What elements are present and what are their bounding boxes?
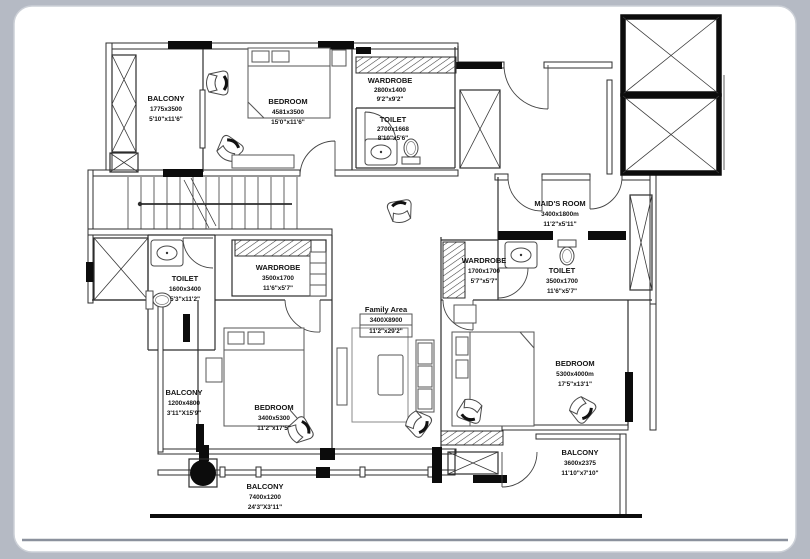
bench-top-left <box>232 155 294 168</box>
svg-text:5'10"x11'6": 5'10"x11'6" <box>149 116 183 123</box>
svg-text:Family Area: Family Area <box>365 305 408 314</box>
room-label-balcony-bottom-right: BALCONY 3600x2375 11'10"x7'10" <box>561 448 598 477</box>
room-label-toilet-top: TOILET 2700x1668 8'10"x5'6" <box>377 115 409 142</box>
svg-text:1775x3500: 1775x3500 <box>150 106 182 113</box>
svg-text:5300x4000m: 5300x4000m <box>556 371 594 378</box>
room-label-toilet-right: TOILET 3500x1700 11'6"x5'7" <box>546 266 578 295</box>
svg-text:BALCONY: BALCONY <box>147 94 184 103</box>
svg-text:3400x5300: 3400x5300 <box>258 415 290 422</box>
floorplan-page: BALCONY 1775x3500 5'10"x11'6" BEDROOM 45… <box>0 0 810 559</box>
svg-text:24'3"X3'11": 24'3"X3'11" <box>248 504 282 511</box>
svg-text:8'10"x5'6": 8'10"x5'6" <box>378 135 408 142</box>
svg-text:9'2"x9'2": 9'2"x9'2" <box>377 96 404 103</box>
svg-text:BALCONY: BALCONY <box>561 448 598 457</box>
svg-text:3400X8900: 3400X8900 <box>370 317 403 324</box>
svg-text:2700x1668: 2700x1668 <box>377 126 409 133</box>
svg-text:5'7"x5'7": 5'7"x5'7" <box>471 278 498 285</box>
svg-text:11'2"x17'5": 11'2"x17'5" <box>257 425 291 432</box>
svg-text:11'2"x29'2": 11'2"x29'2" <box>369 328 403 335</box>
svg-text:11'6"x5'7": 11'6"x5'7" <box>547 288 577 295</box>
svg-text:BEDROOM: BEDROOM <box>254 403 293 412</box>
svg-text:TOILET: TOILET <box>380 115 407 124</box>
svg-text:3'11"X15'9": 3'11"X15'9" <box>167 410 201 417</box>
svg-text:1200x4800: 1200x4800 <box>168 400 200 407</box>
svg-text:3400x1800m: 3400x1800m <box>541 211 579 218</box>
room-label-balcony-top-left: BALCONY 1775x3500 5'10"x11'6" <box>147 94 184 123</box>
room-label-toilet-left: TOILET 1600x3400 5'3"x11'2" <box>169 274 201 303</box>
svg-text:WARDROBE: WARDROBE <box>368 76 413 85</box>
svg-text:WARDROBE: WARDROBE <box>462 256 507 265</box>
svg-text:BEDROOM: BEDROOM <box>555 359 594 368</box>
svg-text:BALCONY: BALCONY <box>165 388 202 397</box>
room-label-bedroom-bottom: BEDROOM 3400x5300 11'2"x17'5" <box>254 403 293 432</box>
room-label-bedroom-right: BEDROOM 5300x4000m 17'5"x13'1" <box>555 359 594 388</box>
chair-icon <box>207 71 229 95</box>
svg-text:3500x1700: 3500x1700 <box>262 275 294 282</box>
svg-text:5'3"x11'2": 5'3"x11'2" <box>170 296 200 303</box>
svg-text:11'10"x7'10": 11'10"x7'10" <box>561 470 598 477</box>
room-label-family-area: Family Area 3400X8900 11'2"x29'2" <box>365 305 408 335</box>
svg-text:7400x1200: 7400x1200 <box>249 494 281 501</box>
svg-text:11'6"x5'7": 11'6"x5'7" <box>263 285 293 292</box>
svg-text:BEDROOM: BEDROOM <box>268 97 307 106</box>
svg-text:BALCONY: BALCONY <box>246 482 283 491</box>
svg-text:MAID'S ROOM: MAID'S ROOM <box>534 199 585 208</box>
svg-text:3500x1700: 3500x1700 <box>546 278 578 285</box>
svg-text:2800x1400: 2800x1400 <box>374 87 406 94</box>
room-label-bedroom-top-left: BEDROOM 4581x3500 15'0"x11'6" <box>268 97 307 126</box>
elevator-shafts <box>623 17 724 173</box>
room-label-balcony-left: BALCONY 1200x4800 3'11"X15'9" <box>165 388 202 417</box>
svg-text:4581x3500: 4581x3500 <box>272 109 304 116</box>
svg-text:17'5"x13'1": 17'5"x13'1" <box>558 381 592 388</box>
svg-text:WARDROBE: WARDROBE <box>256 263 301 272</box>
svg-text:1600x3400: 1600x3400 <box>169 286 201 293</box>
floor-plan-image: BALCONY 1775x3500 5'10"x11'6" BEDROOM 45… <box>0 0 810 559</box>
svg-text:11'2"x5'11": 11'2"x5'11" <box>543 221 576 228</box>
svg-text:TOILET: TOILET <box>549 266 576 275</box>
svg-text:TOILET: TOILET <box>172 274 199 283</box>
svg-text:15'0"x11'6": 15'0"x11'6" <box>271 119 305 126</box>
svg-text:3600x2375: 3600x2375 <box>564 460 596 467</box>
room-label-balcony-bottom: BALCONY 7400x1200 24'3"X3'11" <box>246 482 283 511</box>
svg-text:1700x1700: 1700x1700 <box>468 268 500 275</box>
